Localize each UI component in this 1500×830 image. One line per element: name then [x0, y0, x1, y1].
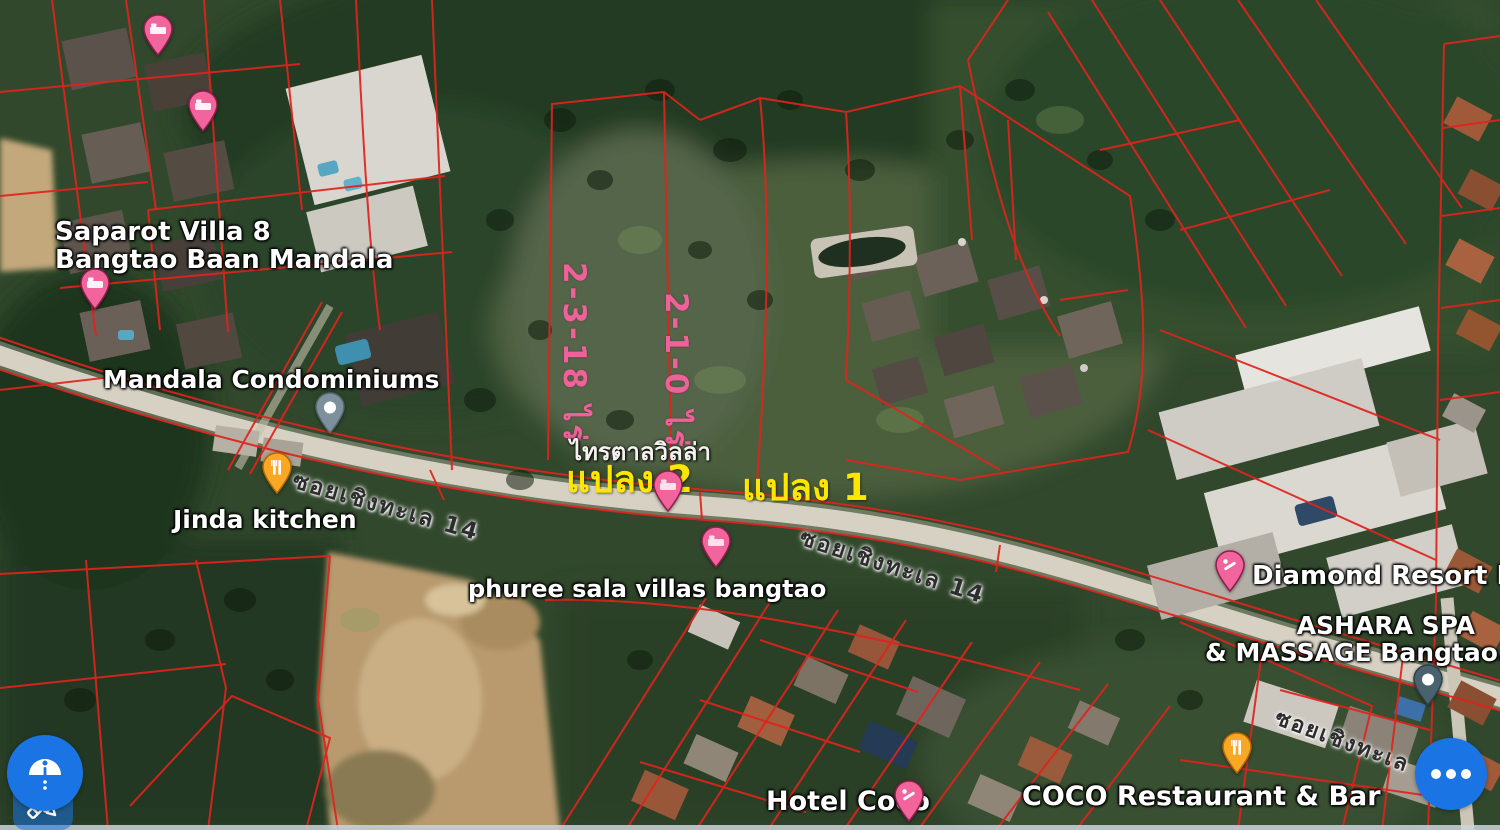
phuree-sala-pin[interactable]: [700, 526, 732, 568]
map-canvas[interactable]: Saparot Villa 8 Bangtao Baan Mandala Man…: [0, 0, 1500, 830]
mandala-condominiums-pin[interactable]: [314, 392, 346, 434]
label-ashara-spa[interactable]: ASHARA SPA & MASSAGE Bangtao...: [1205, 612, 1475, 666]
label-jinda-kitchen[interactable]: Jinda kitchen: [173, 506, 357, 533]
jinda-kitchen-pin[interactable]: [261, 452, 293, 494]
protractor-icon: [22, 747, 68, 799]
more-options-button[interactable]: [1415, 738, 1487, 810]
dot-icon: [1422, 674, 1434, 686]
plot2-hotel-pin[interactable]: [652, 470, 684, 512]
label-saparot-villa[interactable]: Saparot Villa 8 Bangtao Baan Mandala: [55, 218, 393, 274]
hotel-coco-pin[interactable]: [893, 780, 925, 822]
measure-button[interactable]: [7, 735, 83, 811]
saparot-villa-pin[interactable]: [79, 268, 111, 310]
annotation-plot1: แปลง 1: [742, 458, 869, 517]
ashara-spa-pin[interactable]: [1412, 664, 1444, 706]
annotation-area-plot2: 2-3-18 ไร่: [550, 262, 600, 444]
hotel-pin-north-2[interactable]: [187, 90, 219, 132]
label-phuree-sala-villas[interactable]: phuree sala villas bangtao: [468, 577, 826, 603]
hotel-pin-north-1[interactable]: [142, 14, 174, 56]
ellipsis-icon: [1427, 766, 1475, 782]
label-coco-restaurant[interactable]: COCO Restaurant & Bar: [1022, 782, 1381, 811]
annotation-area-plot1: 2-1-0 ไร่: [652, 292, 702, 449]
coco-restaurant-pin[interactable]: [1221, 732, 1253, 774]
satellite-imagery: [0, 0, 1500, 830]
dot-icon: [324, 402, 336, 414]
label-mandala-condominiums[interactable]: Mandala Condominiums: [103, 366, 440, 393]
diamond-resort-pin[interactable]: [1214, 550, 1246, 592]
label-diamond-resort[interactable]: Diamond Resort Phuke: [1252, 562, 1500, 590]
